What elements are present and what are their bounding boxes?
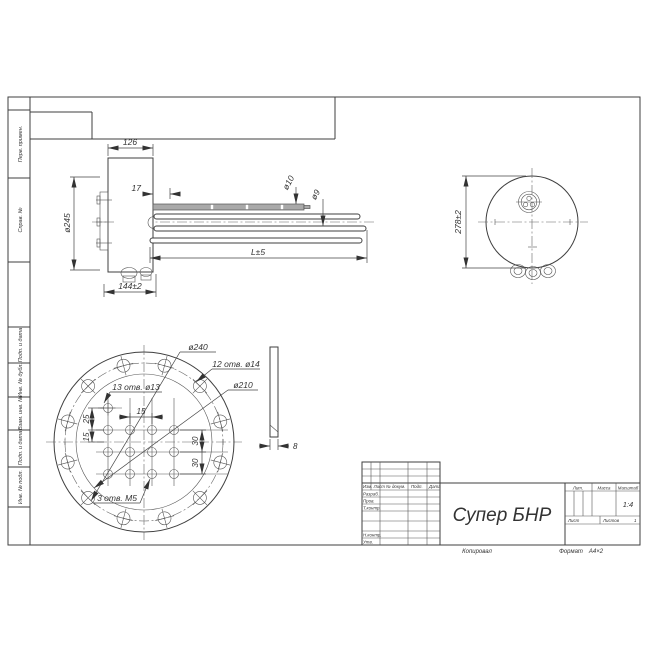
tb-header-izm-list: Изм. Лист: [363, 484, 385, 489]
label-bolt-circle-dia: ø240: [91, 342, 216, 501]
footer-format-value: А4×2: [588, 549, 604, 555]
tb-listov: Листов: [602, 518, 620, 523]
tb-prov: Пров.: [363, 499, 375, 504]
tb-lit: Лит.: [572, 486, 583, 491]
end-view: 278±2: [453, 168, 588, 284]
sheet-frame: [8, 97, 640, 545]
side-view: 126 17 ø245 144±2 L±5: [62, 137, 375, 297]
svg-text:30: 30: [191, 436, 200, 445]
tb-nkontr: Н.контр.: [363, 533, 382, 538]
svg-text:8: 8: [293, 442, 298, 451]
svg-text:L±5: L±5: [251, 247, 265, 257]
margin-label-podp-i-data-2: Подп. и дата: [18, 431, 24, 465]
leader-thermowell-dia: ø10: [280, 174, 296, 204]
svg-text:15: 15: [82, 432, 91, 441]
tb-tkontr: Т.контр.: [363, 506, 381, 511]
margin-label-sprav-no: Справ. №: [18, 207, 24, 232]
label-m5-holes: 3 отв. М5: [94, 479, 150, 503]
thermowell-tube: [153, 204, 310, 210]
svg-text:ø210: ø210: [233, 380, 253, 390]
tb-scale-value: 1:4: [623, 500, 633, 509]
margin-label-vzam-inv-no: Взам. инв. №: [18, 396, 24, 430]
tb-header-doc: № докум.: [386, 484, 405, 489]
margin-label-perv-primen: Перв. примен.: [18, 126, 24, 163]
footer-kopiroval: Копировал: [462, 549, 492, 555]
margin-label-inv-no-dubl: Инв. № дубл.: [18, 363, 24, 397]
tb-razrab: Разраб.: [363, 492, 379, 497]
dim-flange-dia: ø245: [62, 177, 100, 270]
dim-row-spacings: 30 30: [180, 430, 206, 474]
svg-text:25: 25: [82, 414, 91, 424]
margin-label-inv-no-podl: Инв. № подл.: [18, 470, 24, 504]
margin-label-podp-i-data-1: Подп. и дата: [18, 328, 24, 362]
tb-header-podp: Подп.: [411, 484, 423, 489]
svg-text:ø10: ø10: [280, 174, 296, 192]
tb-listov-value: 1: [634, 518, 637, 523]
tb-list: Лист: [567, 518, 580, 523]
drawing-sheet: Перв. примен. Справ. № Подп. и дата Инв.…: [0, 0, 650, 650]
svg-text:144±2: 144±2: [118, 281, 142, 291]
tb-header-data: Дата: [428, 484, 441, 489]
svg-text:17: 17: [132, 183, 142, 193]
svg-text:13 отв. ø13: 13 отв. ø13: [112, 382, 160, 392]
title-block: Изм. Лист № докум. Подп. Дата Разраб. Пр…: [362, 462, 640, 545]
footer-format-label: Формат: [559, 549, 583, 555]
flange-face-view: ø240 12 отв. ø14 ø210 13 отв. ø13 3 отв.…: [46, 342, 260, 540]
margin-column: Перв. примен. Справ. № Подп. и дата Инв.…: [8, 110, 30, 507]
label-tube-holes: 13 отв. ø13: [104, 382, 162, 403]
svg-text:ø245: ø245: [62, 213, 72, 233]
technical-drawing: Перв. примен. Справ. № Подп. и дата Инв.…: [0, 0, 650, 650]
svg-text:278±2: 278±2: [453, 210, 463, 235]
dim-126: 126: [108, 137, 153, 156]
svg-text:ø240: ø240: [188, 342, 208, 352]
dim-thickness: 8: [259, 439, 298, 451]
dim-left-offsets: 25 15: [82, 408, 104, 442]
part-name: Супер БНР: [453, 505, 552, 526]
tb-massa: Масса: [598, 486, 612, 491]
flange-section-view: 8: [259, 347, 298, 451]
svg-text:15: 15: [137, 407, 146, 416]
svg-text:ø9: ø9: [309, 188, 323, 202]
tb-masshtab: Масштаб: [618, 486, 639, 491]
thermowell-end: [516, 192, 542, 213]
heater-tubes: [148, 214, 366, 243]
svg-text:126: 126: [123, 137, 137, 147]
svg-text:12 отв. ø14: 12 отв. ø14: [212, 359, 260, 369]
dim-144: 144±2: [104, 274, 156, 297]
dim-length: L±5: [150, 230, 367, 263]
leader-tube-dia: ø9: [309, 188, 323, 226]
dim-col-spacing: 15: [119, 407, 163, 424]
footer-notes: Копировал Формат А4×2: [462, 549, 604, 555]
svg-text:30: 30: [191, 458, 200, 467]
end-view-glands: [511, 265, 556, 280]
svg-text:3 отв. М5: 3 отв. М5: [97, 493, 137, 503]
label-bolt-holes: 12 отв. ø14: [196, 359, 260, 382]
tb-utv: Утв.: [363, 540, 373, 545]
